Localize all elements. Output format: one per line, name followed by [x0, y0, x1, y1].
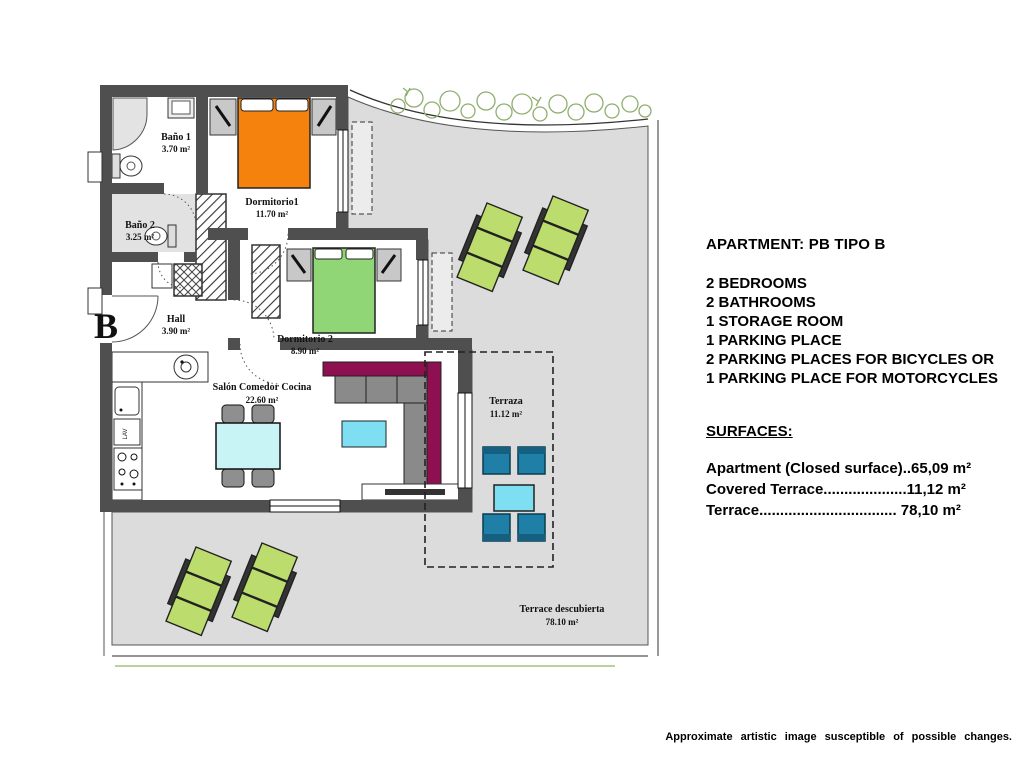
surface-line: Apartment (Closed surface)..65,09 m² [706, 458, 1018, 479]
apartment-title: APARTMENT: PB TIPO B [706, 236, 1018, 253]
label-salon: Salón Comedor Cocina [213, 382, 312, 393]
label-bano1: Baño 1 [161, 132, 191, 143]
area-dorm1: 11.70 m² [256, 209, 289, 219]
disclaimer-text: Approximate artistic image susceptible o… [592, 731, 1012, 743]
svg-text:LAV: LAV [123, 429, 129, 440]
plants-icon [391, 88, 651, 121]
feature-line: 2 BEDROOMS [706, 274, 1018, 293]
info-panel: APARTMENT: PB TIPO B 2 BEDROOMS 2 BATHRO… [706, 236, 1018, 388]
sink-bath1-icon [168, 98, 194, 118]
bed-dorm1 [238, 98, 310, 188]
area-salon: 22.60 m² [246, 395, 279, 405]
feature-line: 2 BATHROOMS [706, 293, 1018, 312]
label-dorm2: Dormitorio 2 [277, 334, 333, 345]
label-dorm1: Dormitorio1 [245, 197, 298, 208]
tv-bench [362, 484, 468, 500]
floorplan-page: LAV [0, 0, 1024, 768]
feature-line: 1 STORAGE ROOM [706, 312, 1018, 331]
toilet-bath1-icon [112, 154, 142, 178]
stove-icon [114, 448, 142, 490]
label-bano2: Baño 2 [125, 220, 155, 231]
area-open-terrace: 78.10 m² [546, 617, 579, 627]
feature-line: 1 PARKING PLACE FOR MOTORCYCLES [706, 369, 1018, 388]
area-hall: 3.90 m² [162, 326, 190, 336]
wall-niche [88, 152, 102, 182]
area-bano2: 3.25 m² [126, 232, 154, 242]
area-dorm2: 8.90 m² [291, 346, 319, 356]
bed-dorm2 [313, 248, 375, 333]
surface-line: Terrace.................................… [706, 500, 1018, 521]
feature-line: 1 PARKING PLACE [706, 331, 1018, 350]
area-bano1: 3.70 m² [162, 144, 190, 154]
surfaces-panel: SURFACES: Apartment (Closed surface)..65… [706, 423, 1018, 521]
washer-icon: LAV [114, 419, 140, 445]
label-open-terrace: Terrace descubierta [520, 604, 605, 615]
block-letter: B [94, 306, 118, 346]
storage-room [174, 264, 202, 296]
dining-table [216, 423, 280, 469]
label-hall: Hall [167, 314, 186, 325]
label-terraza: Terraza [489, 396, 523, 407]
coffee-table [342, 421, 386, 447]
surface-line: Covered Terrace....................11,12… [706, 479, 1018, 500]
feature-line: 2 PARKING PLACES FOR BICYCLES OR [706, 350, 1018, 369]
area-terraza: 11.12 m² [490, 409, 523, 419]
kitchen-sink-icon [115, 387, 139, 415]
patio-table [494, 485, 534, 511]
surfaces-heading: SURFACES: [706, 423, 1018, 440]
